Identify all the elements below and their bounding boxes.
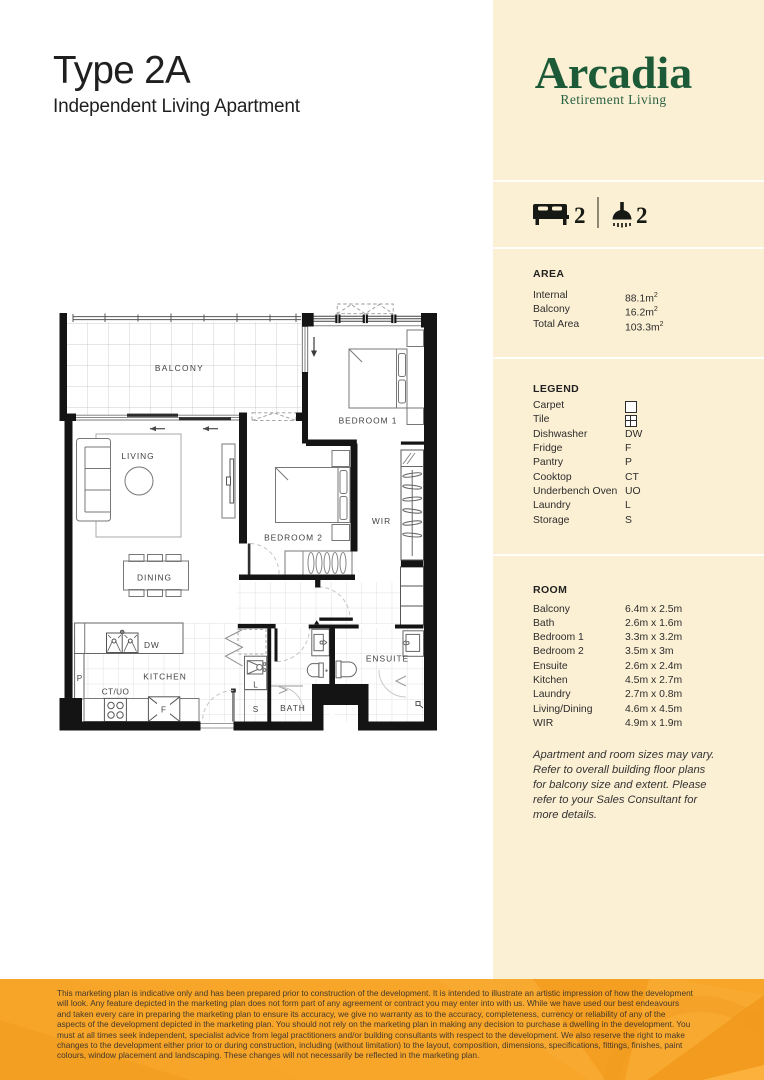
- svg-text:ENSUITE: ENSUITE: [366, 654, 409, 664]
- svg-text:DW: DW: [144, 640, 160, 650]
- svg-text:DINING: DINING: [137, 573, 172, 583]
- svg-text:BALCONY: BALCONY: [155, 363, 204, 373]
- svg-text:BEDROOM 1: BEDROOM 1: [339, 416, 398, 426]
- svg-text:F: F: [161, 706, 166, 715]
- svg-text:BATH: BATH: [280, 703, 306, 713]
- svg-text:CT/UO: CT/UO: [102, 688, 129, 697]
- svg-text:WIR: WIR: [372, 516, 391, 526]
- svg-text:S: S: [253, 705, 259, 714]
- svg-text:LIVING: LIVING: [121, 451, 154, 461]
- svg-text:KITCHEN: KITCHEN: [143, 672, 186, 682]
- svg-text:P: P: [77, 674, 83, 683]
- svg-text:L: L: [253, 681, 258, 690]
- svg-text:BEDROOM 2: BEDROOM 2: [264, 533, 323, 543]
